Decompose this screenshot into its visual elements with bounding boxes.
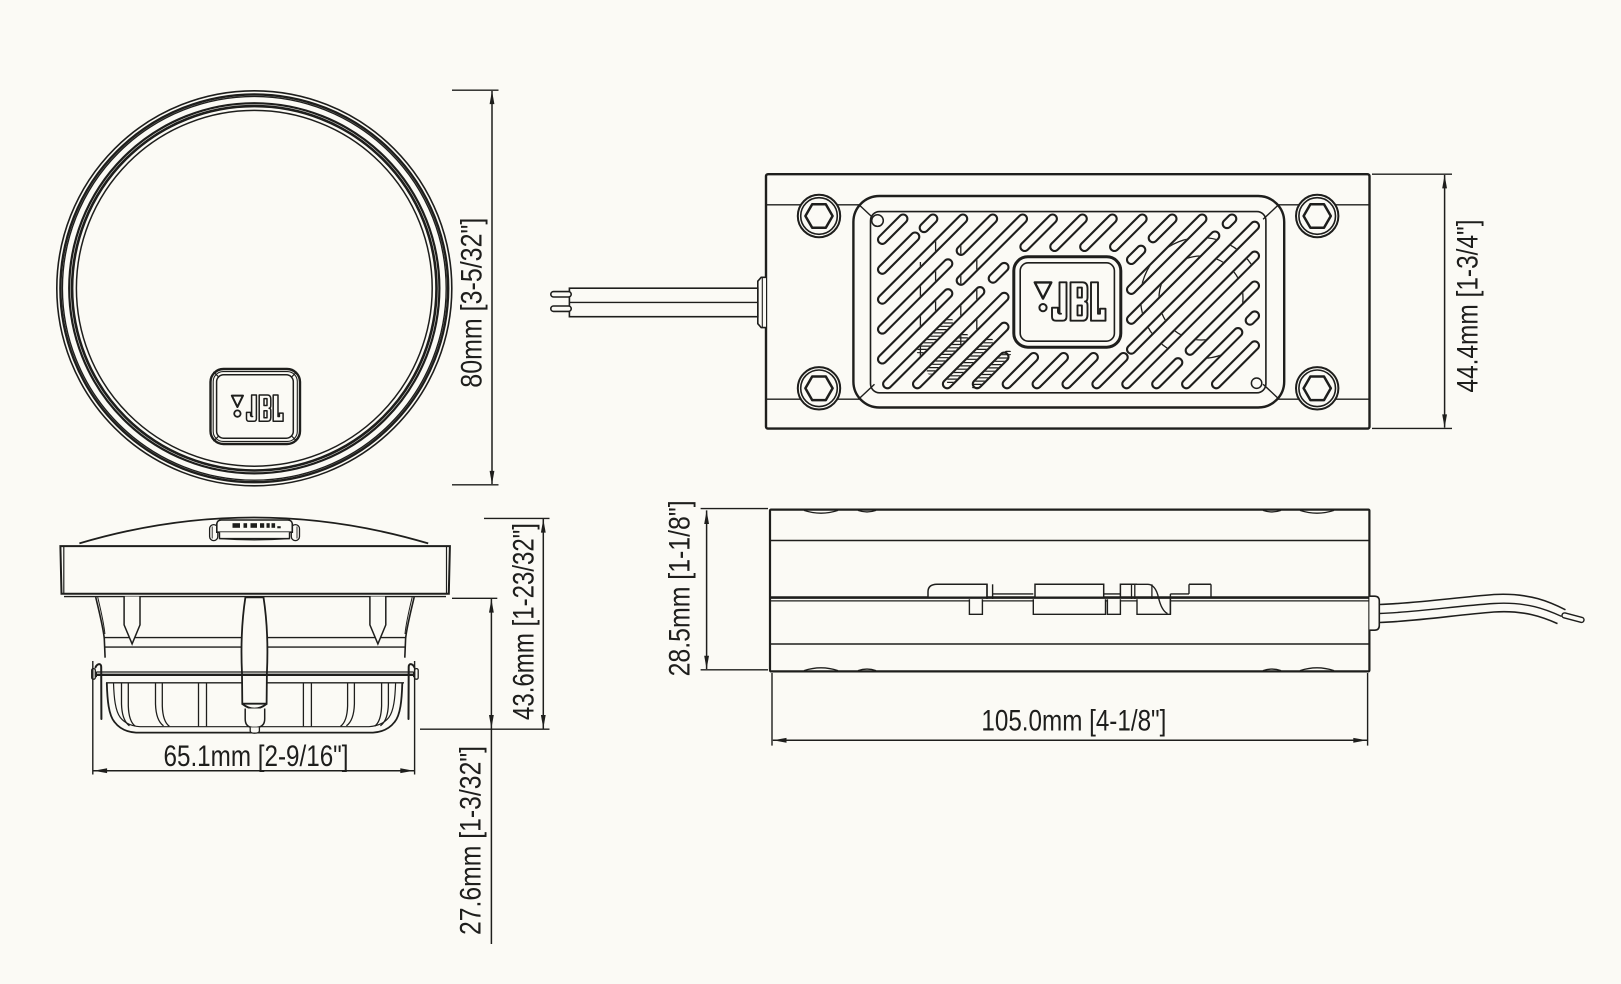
svg-text:105.0mm [4-1/8"]: 105.0mm [4-1/8"] bbox=[981, 705, 1166, 738]
svg-text:28.5mm [1-1/8"]: 28.5mm [1-1/8"] bbox=[664, 500, 697, 676]
svg-text:44.4mm [1-3/4"]: 44.4mm [1-3/4"] bbox=[1452, 220, 1485, 393]
svg-text:65.1mm [2-9/16"]: 65.1mm [2-9/16"] bbox=[164, 740, 349, 773]
svg-text:27.6mm [1-3/32"]: 27.6mm [1-3/32"] bbox=[455, 746, 488, 935]
svg-text:43.6mm [1-23/32"]: 43.6mm [1-23/32"] bbox=[508, 523, 541, 720]
svg-text:80mm [3-5/32"]: 80mm [3-5/32"] bbox=[456, 218, 489, 388]
